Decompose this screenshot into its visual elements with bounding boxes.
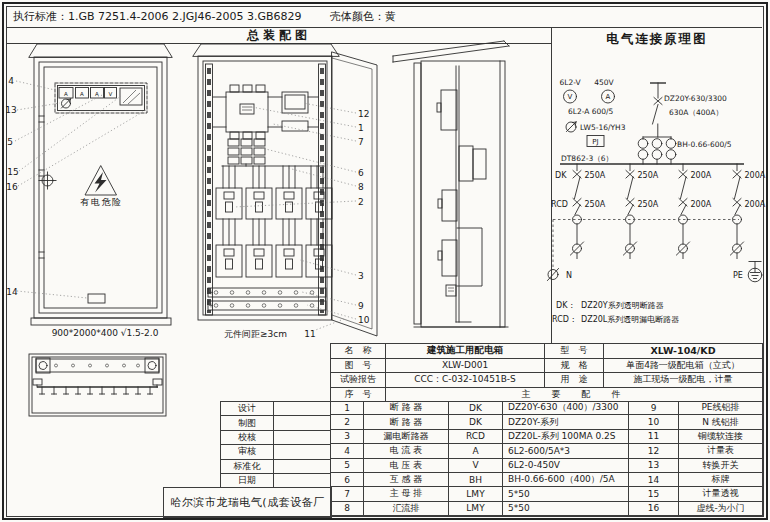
spec-value-cell: 单面4路一级配电箱（立式）: [604, 359, 763, 374]
seq-label-cell: 序 号: [331, 388, 386, 403]
pj-label: PJ: [592, 138, 598, 146]
rcd-row-label: RCD: [551, 200, 568, 209]
sign-label: 校核: [221, 431, 274, 445]
schematic-drawing: V A 6L2-V 450V 6L2-A 600/5 LW5-16/YH3 PJ…: [548, 78, 766, 324]
part-code: DK: [449, 415, 503, 429]
lightning-bolt-icon: [95, 172, 107, 193]
dk-breaker-2: [246, 188, 272, 219]
rcd-rating-1: 250A: [585, 200, 606, 209]
part-no2: 14: [629, 473, 679, 487]
title-block-header-table: 名 称 建筑施工用配电箱 型 号 XLW-104/KD 图 号 XLW-D001…: [330, 343, 763, 402]
part-name: 电 压 表: [364, 459, 449, 473]
open-view-drawing: 元件间距≥3cm 12 1 7 6 8 2 3 9 10 11: [193, 44, 377, 339]
front-view-drawing: A A A V 有电危险 900*2000*400 √1.5-2.0 4 13 …: [5, 44, 172, 338]
part-name2: 计量透视: [679, 487, 763, 501]
switch-model: LW5-16/YH3: [580, 123, 626, 132]
callout-14: 14: [6, 287, 18, 297]
energy-meter-model: DT862-3（6）: [561, 154, 613, 163]
n-label: N: [566, 271, 572, 280]
sign-field: [274, 416, 331, 430]
part-no: 2: [331, 415, 364, 429]
parts-header-cell: 主 要 配 件: [386, 388, 763, 403]
part-name: 互 感 器: [364, 473, 449, 487]
report-label-cell: 试验报告: [331, 373, 386, 388]
callout-15: 15: [7, 167, 18, 177]
part-name2: 计量表: [679, 444, 763, 458]
part-name: 电 流 表: [364, 444, 449, 458]
pe-label: PE: [733, 271, 743, 280]
main-breaker: [226, 92, 268, 132]
dk-rating-4: 200A: [745, 171, 766, 180]
callout-8: 8: [358, 182, 364, 192]
callout-4: 4: [8, 76, 14, 86]
part-code: DK: [449, 401, 503, 415]
part-code: A: [449, 444, 503, 458]
part-name: 断 路 器: [364, 401, 449, 415]
part-spec: 5*50: [503, 502, 629, 516]
part-no: 8: [331, 502, 364, 516]
part-code: BH: [449, 473, 503, 487]
use-label-cell: 用 途: [545, 373, 604, 388]
dk-rating-1: 250A: [585, 171, 606, 180]
company-name: 哈尔滨市龙瑞电气(成套设备厂: [163, 487, 332, 518]
spec-label-cell: 规 格: [545, 359, 604, 374]
part-name: 汇流排: [364, 502, 449, 516]
part-code: LMY: [449, 487, 503, 501]
part-spec: DZ20L-系列 100MA 0.2S: [503, 430, 629, 444]
legend-rcd-value: DZ20L系列透明漏电断路器: [581, 315, 679, 324]
feeder-4: [731, 164, 744, 259]
callout-13: 13: [5, 105, 16, 115]
part-no2: 16: [629, 502, 679, 516]
feeder-3: [677, 164, 690, 259]
ammeter-letter: A: [606, 93, 611, 101]
sign-label: 审核: [221, 445, 274, 459]
voltmeter-model: 6L2-V: [559, 78, 581, 87]
callout-3: 3: [358, 271, 364, 281]
model-label-cell: 型 号: [545, 344, 604, 359]
main-breaker-model: DZ20Y-630/3300: [664, 94, 727, 103]
sign-label: 标准化: [221, 460, 274, 474]
use-value-cell: 施工现场一级配电，计量: [604, 373, 763, 388]
part-name: 漏电断路器: [364, 430, 449, 444]
feeder-1: [571, 164, 584, 259]
sign-field: [274, 402, 331, 416]
part-name2: 虚线-为小门: [679, 502, 763, 516]
callout-5: 5: [7, 137, 13, 147]
rcd-breaker-1: [216, 245, 242, 277]
legend-dk-value: DZ20Y系列透明断路器: [581, 301, 664, 310]
voltmeter-label: V: [109, 91, 113, 97]
rcd-breaker-3: [276, 245, 302, 277]
model-value-cell: XLW-104/KD: [604, 344, 763, 359]
callout-2: 2: [358, 197, 364, 207]
rcd-rating-3: 200A: [691, 200, 712, 209]
part-no2: 11: [629, 430, 679, 444]
main-breaker-symbol: [643, 83, 671, 139]
part-no2: 10: [629, 415, 679, 429]
part-code: RCD: [449, 430, 503, 444]
ct-model: BH-0.66-600/5: [677, 140, 732, 149]
dk-rating-3: 200A: [691, 171, 712, 180]
part-name2: 标牌: [679, 473, 763, 487]
voltmeter-letter: V: [568, 93, 573, 101]
signature-table: 设计 制图 校核 审核 标准化 日期: [220, 401, 331, 488]
callout-9: 9: [358, 301, 364, 311]
dk-rating-2: 250A: [638, 171, 659, 180]
sign-label: 设计: [221, 402, 274, 416]
part-no2: 12: [629, 444, 679, 458]
part-no2: 13: [629, 459, 679, 473]
warning-text: 有电危险: [80, 197, 123, 207]
part-code: V: [449, 459, 503, 473]
sign-field: [274, 460, 331, 474]
sign-field: [274, 445, 331, 459]
name-label-cell: 名 称: [331, 344, 386, 359]
callout-10: 10: [358, 315, 370, 325]
cabinet-dimensions: 900*2000*400 √1.5-2.0: [52, 328, 159, 338]
name-value-cell: 建筑施工用配电箱: [386, 344, 545, 359]
part-name: 主 母 排: [364, 487, 449, 501]
drawing-sheet: 执行标准：1.GB 7251.4-2006 2.JGJ46-2005 3.GB6…: [0, 0, 770, 522]
rcd-rating-4: 200A: [745, 200, 766, 209]
callout-16: 16: [6, 182, 18, 192]
drawing-no-value-cell: XLW-D001: [386, 359, 545, 374]
part-spec: 6L2-0-450V: [503, 459, 629, 473]
dk-row-label: DK: [555, 171, 567, 180]
part-no2: 15: [629, 487, 679, 501]
dk-breaker-1: [216, 188, 242, 219]
part-no: 7: [331, 487, 364, 501]
main-breaker-rating: 630A（400A）: [669, 108, 723, 117]
legend-dk-key: DK：: [556, 301, 575, 310]
busbar-detail-drawing: [29, 354, 166, 416]
part-name2: 转换开关: [679, 459, 763, 473]
part-name: 断 路 器: [364, 415, 449, 429]
part-spec: DZ20Y-630（400）/3300: [503, 401, 629, 415]
legend-rcd-key: RCD：: [552, 315, 577, 324]
earth-symbol-icon: [748, 262, 762, 282]
mounting-panel: [456, 66, 471, 322]
dk-breaker-4: [306, 188, 332, 219]
ammeter-3-label: A: [95, 91, 99, 97]
part-name2: 铜缆软连接: [679, 430, 763, 444]
part-code: LMY: [449, 502, 503, 516]
part-name2: PE线铝排: [679, 401, 763, 415]
part-no: 1: [331, 401, 364, 415]
part-no: 6: [331, 473, 364, 487]
spacing-note: 元件间距≥3cm: [224, 329, 287, 339]
open-door: [332, 52, 377, 336]
callout-7: 7: [358, 137, 364, 147]
ammeter-2-label: A: [80, 91, 84, 97]
part-no: 3: [331, 430, 364, 444]
ammeter-model: 6L2-A 600/5: [568, 107, 614, 116]
sign-field: [274, 431, 331, 445]
name-plate: [88, 294, 105, 303]
callout-1: 1: [358, 123, 364, 133]
drawing-no-label-cell: 图 号: [331, 359, 386, 374]
pe-busbar-strip: [208, 288, 326, 297]
rcd-rating-2: 250A: [638, 200, 659, 209]
rcd-breaker-4: [306, 245, 332, 277]
part-no2: 9: [629, 401, 679, 415]
part-spec: 5*50: [503, 487, 629, 501]
callout-6: 6: [358, 168, 364, 178]
report-value-cell: CCC：C-032-10451B-S: [386, 373, 545, 388]
part-spec: DZ20Y-系列: [503, 415, 629, 429]
parts-table: 1断 路 器DKDZ20Y-630（400）/33009PE线铝排 2断 路 器…: [330, 401, 763, 516]
part-spec: 6L2-600/5A*3: [503, 444, 629, 458]
part-no: 5: [331, 459, 364, 473]
part-no: 4: [331, 444, 364, 458]
callout-12: 12: [358, 109, 369, 119]
ammeter-range: 450V: [594, 78, 614, 87]
sign-label: 制图: [221, 416, 274, 430]
part-spec: BH-0.66-600（400）/5A: [503, 473, 629, 487]
ammeter-1-label: A: [64, 91, 68, 97]
part-name2: N 线铝排: [679, 415, 763, 429]
rcd-breaker-2: [246, 245, 272, 277]
feeder-2: [624, 164, 637, 259]
n-busbar-strip: [208, 301, 326, 310]
side-view-drawing: [393, 41, 509, 327]
